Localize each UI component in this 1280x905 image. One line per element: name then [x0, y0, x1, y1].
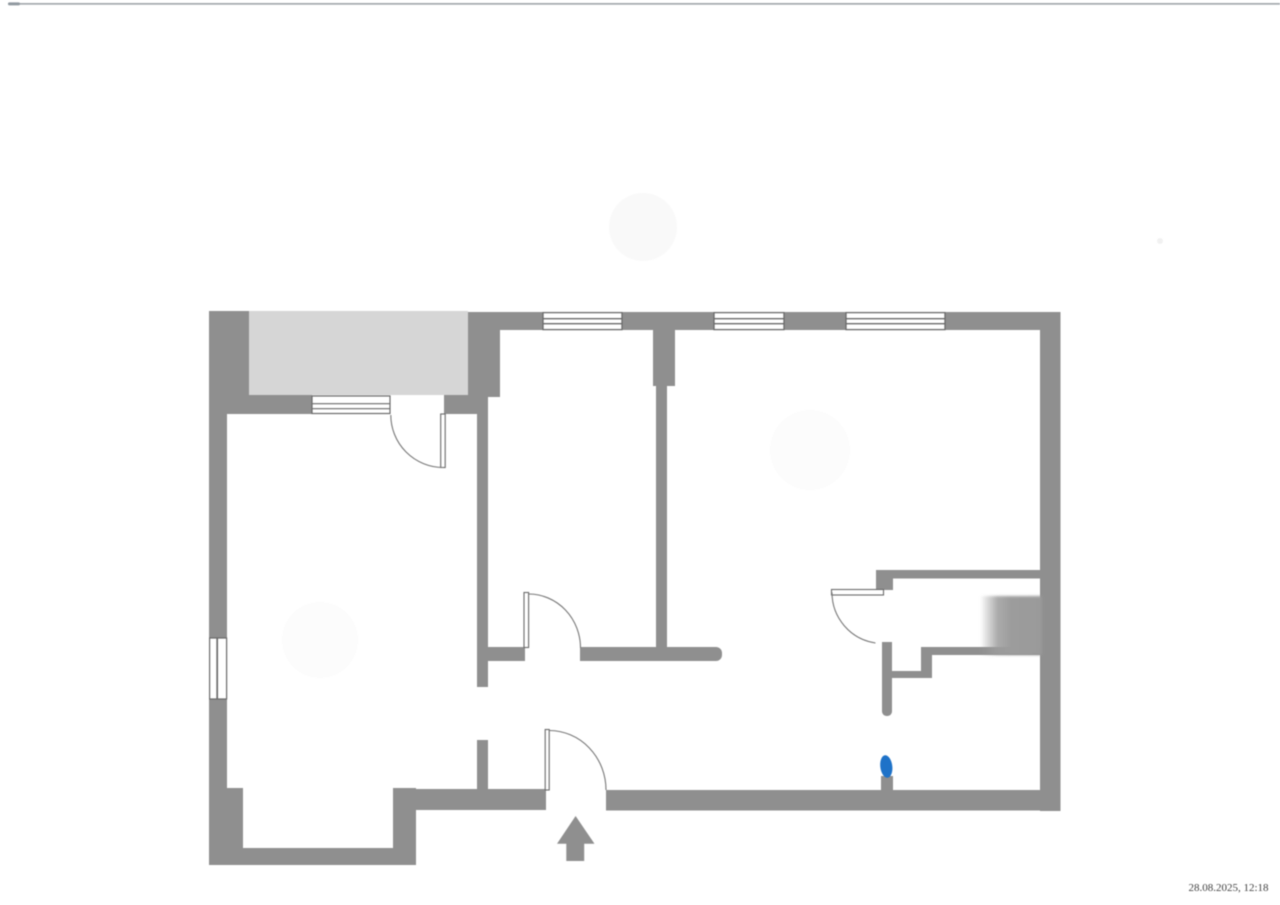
svg-text:28.08.2025, 12:18: 28.08.2025, 12:18 — [1188, 882, 1269, 894]
